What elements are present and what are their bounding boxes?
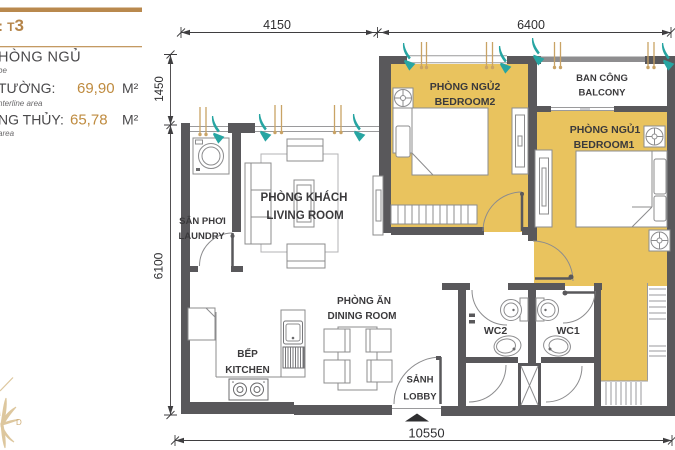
svg-text:1450: 1450 [154,76,166,102]
svg-text:LAUNDRY: LAUNDRY [178,231,225,242]
svg-text:10550: 10550 [408,426,444,441]
svg-text:nterline area: nterline area [0,99,43,108]
svg-text:WC1: WC1 [556,325,579,337]
svg-text:BAN CÔNG: BAN CÔNG [576,72,628,84]
svg-text:6400: 6400 [517,18,545,32]
svg-text:PHÒNG KHÁCH: PHÒNG KHÁCH [261,191,348,204]
svg-text:KITCHEN: KITCHEN [225,365,269,376]
svg-text:D: D [16,418,22,427]
svg-text:SẢNH: SẢNH [407,374,434,386]
svg-text:LIVING ROOM: LIVING ROOM [266,210,343,222]
svg-text:HÒNG NGỦ: HÒNG NGỦ [0,48,81,66]
svg-text:DINING ROOM: DINING ROOM [328,311,397,322]
svg-text:LOBBY: LOBBY [403,392,437,403]
svg-text:6100: 6100 [152,252,166,279]
svg-text:4150: 4150 [263,18,291,32]
svg-text:area: area [0,129,15,138]
svg-text:PHÒNG NGỦ2: PHÒNG NGỦ2 [430,80,501,93]
svg-text:PHÒNG ĂN: PHÒNG ĂN [337,294,391,307]
svg-text:BẾP: BẾP [237,347,258,360]
svg-text:BALCONY: BALCONY [579,88,627,99]
svg-text:be: be [0,66,7,75]
svg-text:PHÒNG NGỦ1: PHÒNG NGỦ1 [570,123,641,136]
svg-text:BEDROOM2: BEDROOM2 [435,96,496,108]
svg-text:SÂN PHƠI: SÂN PHƠI [179,215,226,227]
svg-text:BEDROOM1: BEDROOM1 [574,139,635,151]
svg-text:WC2: WC2 [484,325,507,337]
